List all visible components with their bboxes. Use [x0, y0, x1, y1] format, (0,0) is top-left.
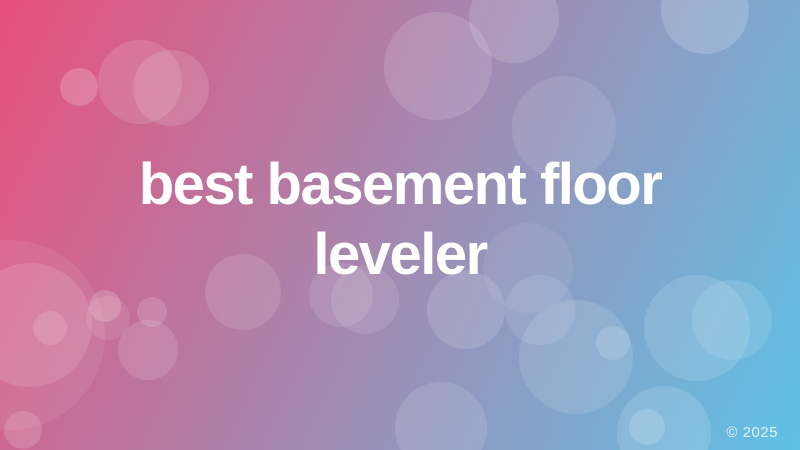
- bubble: [118, 320, 178, 380]
- title-line-2: leveler: [0, 220, 800, 290]
- bubble: [661, 0, 749, 54]
- bubble: [692, 280, 772, 360]
- bubble: [33, 311, 67, 345]
- gradient-background: best basement floor leveler © 2025: [0, 0, 800, 450]
- bubble: [133, 50, 209, 126]
- bubble: [519, 300, 633, 414]
- copyright-notice: © 2025: [726, 424, 778, 441]
- bubble: [60, 68, 98, 106]
- page-title: best basement floor leveler: [0, 150, 800, 290]
- bubble: [395, 382, 487, 450]
- bubble: [629, 409, 665, 445]
- title-line-1: best basement floor: [0, 150, 800, 220]
- bubble: [4, 411, 42, 449]
